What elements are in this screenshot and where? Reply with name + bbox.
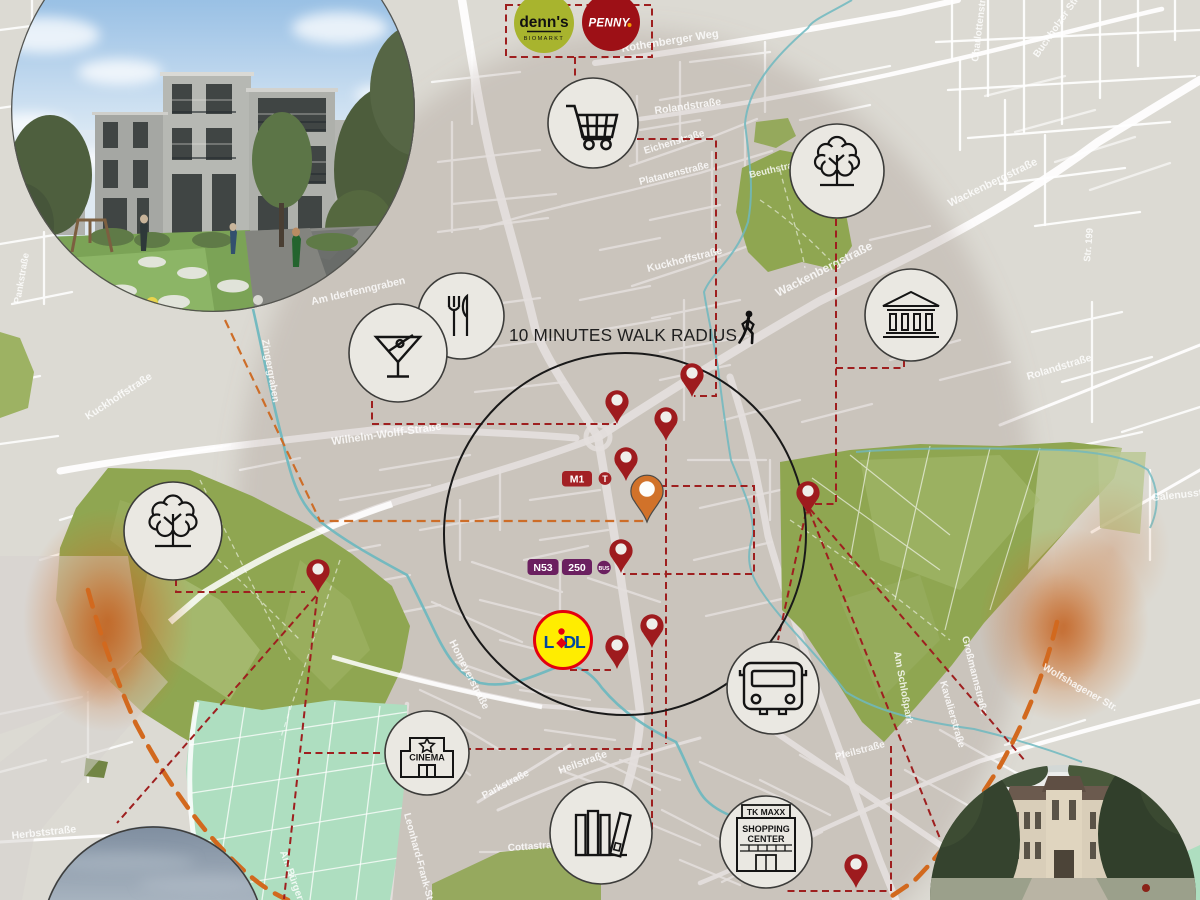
svg-text:CENTER: CENTER <box>747 834 785 844</box>
svg-text:10 MINUTES WALK RADIUS: 10 MINUTES WALK RADIUS <box>509 325 737 345</box>
svg-text:N53: N53 <box>533 562 552 574</box>
svg-text:L: L <box>544 632 555 652</box>
svg-text:DL: DL <box>563 632 586 652</box>
svg-text:SHOPPING: SHOPPING <box>742 824 790 834</box>
svg-text:250: 250 <box>568 562 586 574</box>
svg-text:PENNY: PENNY <box>588 18 630 30</box>
svg-text:BIOMARKT: BIOMARKT <box>524 36 564 42</box>
svg-text:TK MAXX: TK MAXX <box>747 807 786 817</box>
svg-text:CINEMA: CINEMA <box>409 753 445 763</box>
svg-text:BUS: BUS <box>599 566 610 572</box>
svg-text:M1: M1 <box>570 474 585 486</box>
svg-text:T: T <box>602 474 608 484</box>
svg-text:denn's: denn's <box>519 14 568 31</box>
